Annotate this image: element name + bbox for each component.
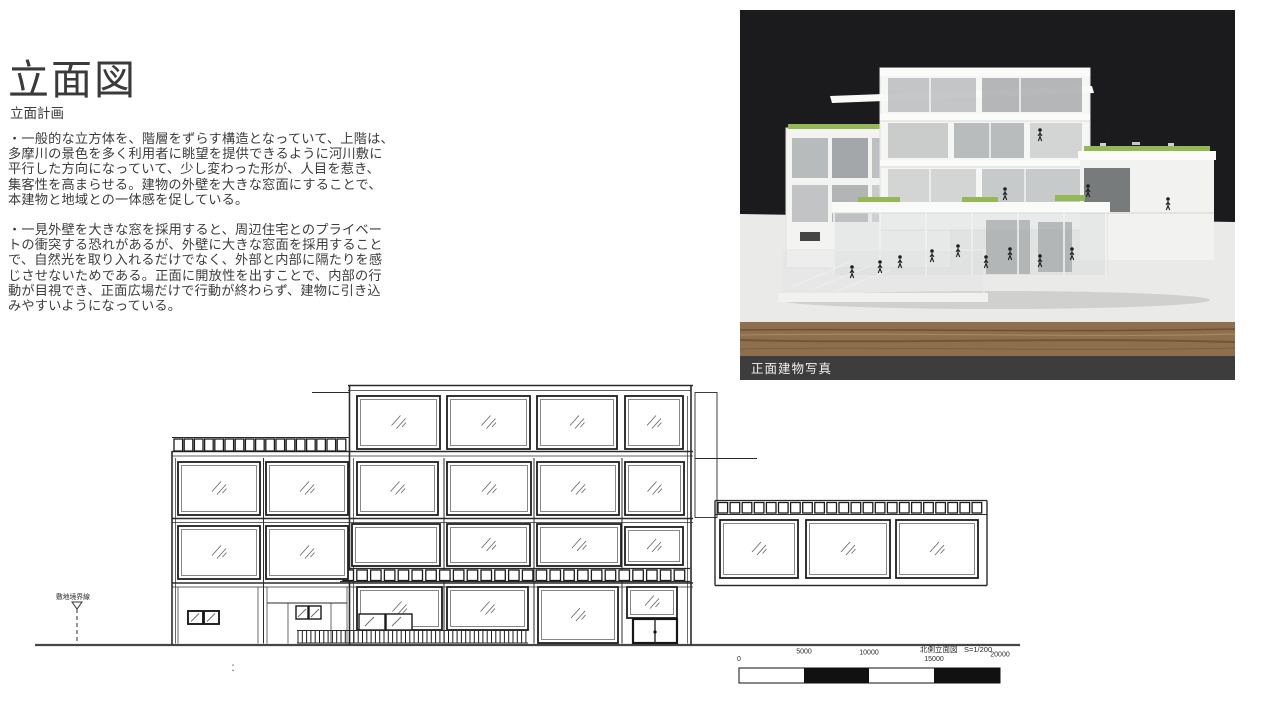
railing-square [815, 503, 825, 514]
railing-square [718, 503, 728, 514]
window [627, 587, 677, 618]
window [447, 587, 528, 630]
railing-square [495, 570, 506, 581]
window [266, 462, 348, 515]
railing-square [426, 570, 437, 581]
right-wing-railing [715, 501, 987, 515]
railing-square [660, 570, 671, 581]
window [806, 520, 890, 578]
scale-tick: 10000 [859, 650, 879, 657]
elevation-drawing: 敷地境界線 [0, 0, 1280, 720]
railing-square [440, 570, 451, 581]
railing-square [509, 570, 519, 581]
window [357, 462, 438, 515]
railing-square [900, 503, 910, 514]
railing-square [384, 570, 395, 581]
railing-square [174, 439, 183, 451]
site-boundary-label: 敷地境界線 [56, 592, 90, 601]
window [352, 524, 440, 566]
railing-square [754, 503, 764, 514]
window [357, 396, 440, 449]
scale-bar-segment [934, 668, 1000, 683]
railing-square [276, 439, 285, 451]
window [178, 462, 260, 515]
window [447, 462, 531, 515]
stray-colon-mark: : [231, 660, 234, 674]
railing-square [647, 570, 658, 581]
railing-square [827, 503, 837, 514]
north-elevation: 敷地境界線 [35, 386, 1020, 684]
window [625, 527, 683, 565]
railing-square [371, 570, 382, 581]
railing-square [766, 503, 776, 514]
railing-square [205, 439, 214, 451]
boundary-triangle-icon [72, 602, 82, 609]
railing-square [605, 570, 616, 581]
railing-square [337, 439, 346, 451]
floor3-windows [178, 462, 684, 515]
railing-square [550, 570, 561, 581]
railing-square [481, 570, 492, 581]
window [625, 462, 684, 515]
railing-square [412, 570, 423, 581]
railing-square [936, 503, 946, 514]
window [447, 524, 530, 566]
window [720, 520, 798, 578]
site-boundary-marker: 敷地境界線 [56, 592, 90, 644]
window [178, 526, 260, 579]
railing-square [742, 503, 752, 514]
railing-square [779, 503, 789, 514]
roof-railing-left [174, 439, 346, 451]
railing-square [245, 439, 254, 451]
scale-tick: 15000 [924, 656, 944, 663]
railing-square [184, 439, 193, 451]
slide: { "slide": { "background": "#ffffff" }, … [0, 0, 1280, 720]
railing-square [327, 439, 336, 451]
railing-square [564, 570, 575, 581]
window [447, 396, 530, 449]
scale-tick: 20000 [990, 652, 1010, 659]
railing-square [791, 503, 801, 514]
railing-square [235, 439, 244, 451]
railing-square [307, 439, 316, 451]
railing-square [839, 503, 849, 514]
railing-square [215, 439, 224, 451]
railing-square [674, 570, 685, 581]
floor4-windows [357, 396, 683, 449]
railing-square [317, 439, 326, 451]
scale-bar: 北側立面図 S=1/200 0 5000 10000 15000 20000 [737, 644, 1010, 683]
railing-square [194, 439, 203, 451]
entrance-door [633, 619, 677, 643]
railing-square [225, 439, 234, 451]
ground-floor [178, 587, 677, 644]
railing-square [619, 570, 630, 581]
railing-square [453, 570, 464, 581]
small-window-pair [188, 611, 219, 624]
railing-square [467, 570, 478, 581]
window [537, 396, 617, 449]
door-handle [653, 630, 656, 633]
railing-square [357, 570, 368, 581]
railing-square [803, 503, 813, 514]
railing-square [522, 570, 533, 581]
railing-square [536, 570, 547, 581]
railing-square [924, 503, 934, 514]
railing-square [633, 570, 644, 581]
railing-square [578, 570, 589, 581]
scale-bar-segment [804, 668, 869, 683]
drawing-title: 北側立面図 [920, 644, 958, 654]
window [266, 526, 348, 579]
scale-tick: 5000 [796, 649, 812, 656]
side-wall-outline [695, 393, 717, 518]
louver-fence [297, 631, 528, 644]
railing-square [912, 503, 922, 514]
railing-square [851, 503, 861, 514]
railing-square [296, 439, 305, 451]
railing-square [863, 503, 873, 514]
railing-square [398, 570, 409, 581]
window [896, 520, 978, 578]
window [537, 524, 621, 566]
railing-square [972, 503, 982, 514]
railing-square [256, 439, 265, 451]
railing-square [266, 439, 275, 451]
railing-square [887, 503, 897, 514]
drawing-scale: S=1/200 [964, 645, 992, 654]
railing-square [730, 503, 740, 514]
window [537, 462, 619, 515]
railing-square [286, 439, 295, 451]
sub-window-pair [359, 614, 412, 630]
scale-tick: 0 [737, 656, 741, 663]
railing-square [591, 570, 602, 581]
railing-square [960, 503, 970, 514]
window [625, 396, 683, 449]
window [538, 587, 618, 643]
railing-square [875, 503, 885, 514]
railing-square [948, 503, 958, 514]
terrace-railing [340, 569, 690, 582]
